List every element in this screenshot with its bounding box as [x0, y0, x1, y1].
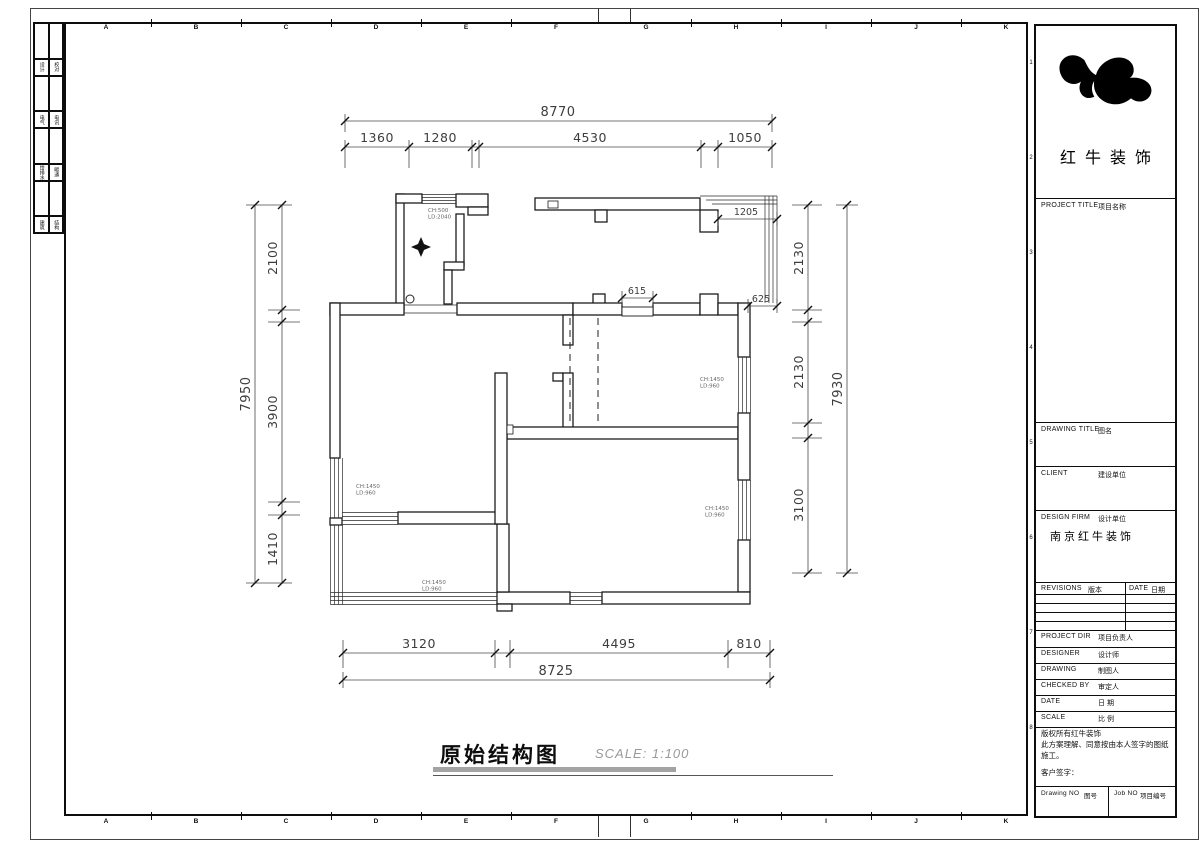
- dim-left-seg: 3900: [265, 395, 280, 429]
- tb-divider: [1036, 198, 1175, 199]
- design-firm-label-zh: 设计单位: [1098, 514, 1126, 524]
- tb-divider: [1036, 594, 1175, 595]
- tb-divider: [1036, 663, 1175, 664]
- dim-detail: 1205: [734, 207, 758, 218]
- drawing-by-label: DRAWING: [1041, 666, 1077, 673]
- floor-plan-svg: 8770 1360 1280 4530 1050 7950 2100 3900 …: [0, 0, 1200, 844]
- date-label-zh: 日 期: [1098, 698, 1114, 708]
- job-no-label: Job NO: [1114, 790, 1138, 797]
- dim-top-seg: 1050: [728, 130, 762, 145]
- title-block: 红牛装饰 PROJECT TITLE 项目名称 DRAWING TITLE 图名…: [1034, 24, 1177, 818]
- dim-top-total: 8770: [540, 105, 575, 120]
- dim-right-seg: 2130: [791, 241, 806, 275]
- window-label: CH:1450 LD:960: [705, 506, 731, 519]
- tb-divider: [1036, 711, 1175, 712]
- client-label: CLIENT: [1041, 470, 1068, 477]
- dim-right-seg: 2130: [791, 355, 806, 389]
- title-underline-bar: [433, 767, 676, 772]
- drawing-sheet: A B C D E F G H I J K A B C D E F G H I …: [0, 0, 1200, 844]
- scale-label: SCALE: [1041, 714, 1065, 721]
- tb-divider: [1036, 422, 1175, 423]
- revisions-label: REVISIONS: [1041, 585, 1082, 592]
- design-firm-value: 南京红牛装饰: [1050, 528, 1134, 544]
- dim-bottom-seg: 4495: [602, 636, 636, 651]
- project-dir-label: PROJECT DIR: [1041, 633, 1091, 640]
- window-label: CH:500 LD:2040: [428, 208, 452, 221]
- date-label: DATE: [1041, 698, 1060, 705]
- designer-label: DESIGNER: [1041, 650, 1080, 657]
- job-no-label-zh: 项目编号: [1140, 790, 1166, 800]
- rednull-bull-logo-icon: [1056, 40, 1156, 135]
- tb-divider: [1036, 647, 1175, 648]
- design-firm-label: DESIGN FIRM: [1041, 514, 1090, 521]
- pipe-symbol: [406, 295, 414, 303]
- tb-divider: [1036, 621, 1175, 622]
- dim-bottom-total: 8725: [538, 664, 573, 679]
- dim-left-seg: 1410: [265, 532, 280, 566]
- dim-left-seg: 2100: [265, 241, 280, 275]
- dim-top-seg: 4530: [573, 130, 607, 145]
- brand-name: 红牛装饰: [1036, 144, 1175, 168]
- window-label: CH:1450 LD:960: [422, 580, 448, 593]
- title-underline-thin: [433, 775, 833, 776]
- tb-divider: [1036, 630, 1175, 631]
- dim-detail: 625: [752, 294, 770, 305]
- project-title-label: PROJECT TITLE: [1041, 202, 1098, 209]
- drawing-no-label: Drawing NO: [1041, 790, 1079, 797]
- checked-by-label: CHECKED BY: [1041, 682, 1090, 689]
- dim-right-seg: 3100: [791, 488, 806, 522]
- designer-label-zh: 设计师: [1098, 650, 1119, 660]
- dashed-lines: [570, 318, 598, 426]
- client-label-zh: 建设单位: [1098, 470, 1126, 480]
- tb-divider: [1036, 466, 1175, 467]
- dim-bottom-seg: 3120: [402, 636, 436, 651]
- tb-col-divider: [1125, 582, 1126, 630]
- tb-col-divider: [1108, 786, 1109, 816]
- tb-divider: [1036, 510, 1175, 511]
- drawing-title-label-zh: 图名: [1098, 426, 1112, 436]
- dim-left-total: 7950: [239, 376, 254, 411]
- tb-divider: [1036, 603, 1175, 604]
- tb-divider: [1036, 695, 1175, 696]
- window-label: CH:1450 LD:960: [700, 377, 726, 390]
- dim-right-total: 7930: [831, 371, 846, 406]
- tb-divider: [1036, 727, 1175, 728]
- drawing-title-label: DRAWING TITLE: [1041, 426, 1099, 433]
- sheet-title: 原始结构图: [440, 739, 560, 769]
- dim-detail: 615: [628, 286, 646, 297]
- copyright-notes: 版权所有红牛装饰 此方案理解、同意按由本人签字的图纸施工。 客户签字：: [1041, 729, 1171, 779]
- dim-top-seg: 1280: [423, 130, 457, 145]
- project-dir-label-zh: 项目负责人: [1098, 633, 1133, 643]
- window-label: CH:1450 LD:960: [356, 484, 382, 497]
- dim-bottom-seg: 810: [736, 636, 761, 651]
- drawing-no-label-zh: 图号: [1084, 790, 1097, 800]
- tb-divider: [1036, 679, 1175, 680]
- project-title-label-zh: 项目名称: [1098, 202, 1126, 212]
- window-labels: CH:500 LD:2040 CH:1450 LD:960 CH:1450 LD…: [356, 208, 731, 593]
- walls-layer: [330, 194, 750, 611]
- tb-divider: [1036, 612, 1175, 613]
- scale-note: SCALE: 1:100: [595, 746, 689, 761]
- tb-divider: [1036, 582, 1175, 583]
- scale-label-zh: 比 例: [1098, 714, 1114, 724]
- date-col-label: DATE: [1129, 585, 1148, 592]
- flue-symbol: [411, 237, 431, 257]
- checked-by-label-zh: 审定人: [1098, 682, 1119, 692]
- dim-top-seg: 1360: [360, 130, 394, 145]
- tb-divider: [1036, 786, 1175, 787]
- drawing-by-label-zh: 制图人: [1098, 666, 1119, 676]
